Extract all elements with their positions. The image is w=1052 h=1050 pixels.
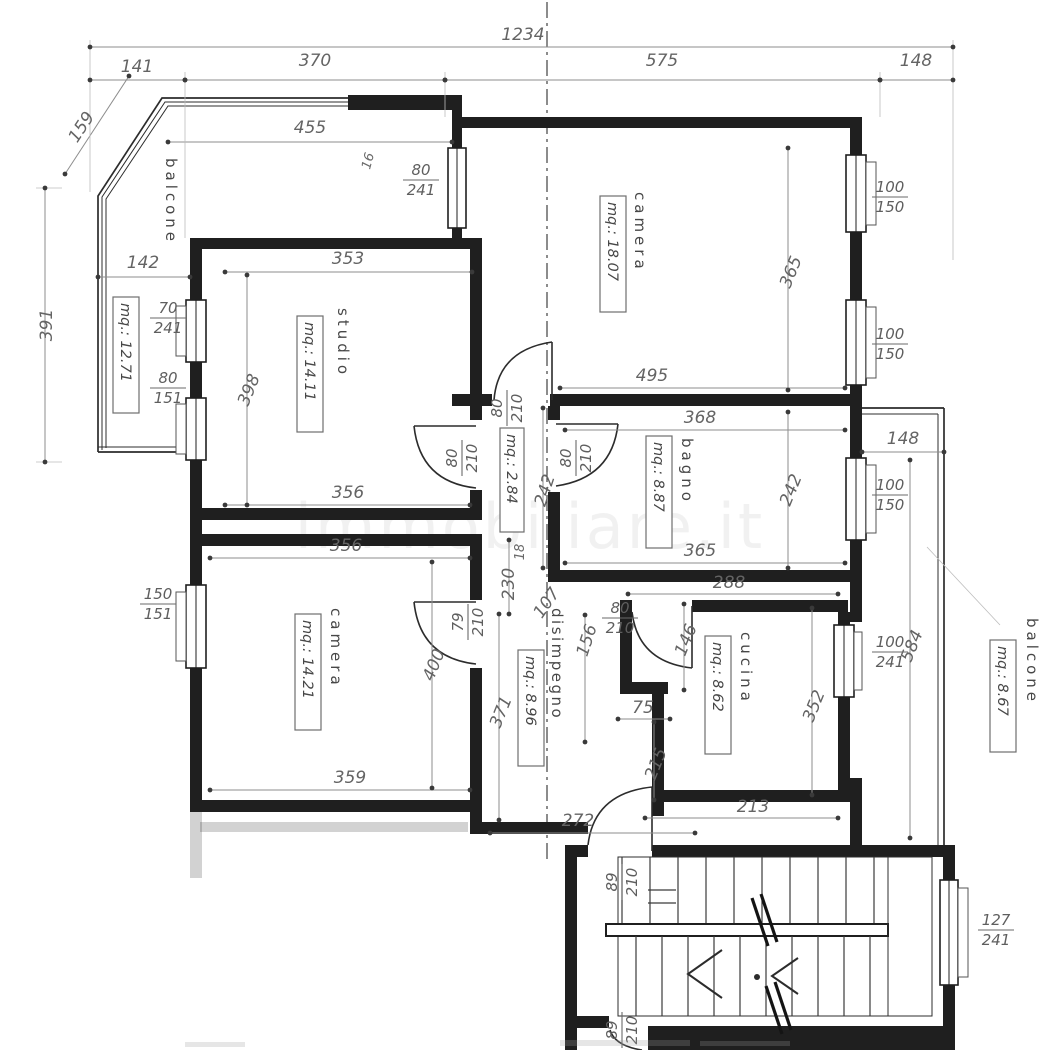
dim-tick-dot xyxy=(908,458,913,463)
room-label-cucina: cucina xyxy=(737,632,755,705)
svg-text:151: 151 xyxy=(154,389,183,407)
room-mq-disimpegno: mq.: 8.96 xyxy=(518,650,544,766)
dim-seg-575: 575 xyxy=(646,51,678,71)
room-label-studio: studio xyxy=(334,308,352,378)
dim-tick-dot xyxy=(507,612,512,617)
svg-text:mq.: 8.87: mq.: 8.87 xyxy=(650,442,666,512)
opening-label-100-241: 100241 xyxy=(872,633,908,671)
walls xyxy=(190,95,955,1050)
svg-text:89: 89 xyxy=(603,1020,621,1039)
svg-text:80: 80 xyxy=(443,448,461,467)
dim-balcony-bottom: 142 xyxy=(127,253,159,273)
room-mq-corridoio: mq.: 2.84 xyxy=(500,428,524,532)
dim-tick-dot xyxy=(652,720,657,725)
dim-tick-dot xyxy=(836,816,841,821)
room-label-balcone-right: balcone xyxy=(1023,618,1041,705)
room-mq-cucina: mq.: 8.62 xyxy=(705,636,731,754)
opening-label-80-241: 80241 xyxy=(403,161,439,199)
svg-text:210: 210 xyxy=(606,619,635,637)
dim-camera-left-top: 356 xyxy=(330,536,363,556)
svg-text:mq.: 14.11: mq.: 14.11 xyxy=(301,322,317,401)
dim-tick-dot xyxy=(563,561,568,566)
dim-tick-dot xyxy=(836,592,841,597)
dim-tick-dot xyxy=(497,612,502,617)
window-100-241-cucina xyxy=(834,625,862,697)
dim-tick-dot xyxy=(468,556,473,561)
svg-text:80: 80 xyxy=(488,398,506,417)
room-label-camera-left: camera xyxy=(327,608,345,689)
room-label-balcone-left: balcone xyxy=(162,158,180,245)
dim-tick-dot xyxy=(668,717,673,722)
dim-tick-dot xyxy=(643,816,648,821)
dim-tick-dot xyxy=(843,428,848,433)
svg-text:127: 127 xyxy=(982,911,1011,929)
svg-text:241: 241 xyxy=(876,653,905,671)
dim-cucina-top: 288 xyxy=(713,573,746,593)
window-100-150-camera-2 xyxy=(846,300,876,385)
dim-tick-dot xyxy=(96,275,101,280)
dim-studio-height: 398 xyxy=(234,371,265,409)
svg-text:210: 210 xyxy=(469,608,487,637)
window-100-150-camera-1 xyxy=(846,155,876,232)
dim-tick-dot xyxy=(183,78,188,83)
dim-tick-dot xyxy=(616,717,621,722)
svg-text:241: 241 xyxy=(407,181,436,199)
dim-tick-dot xyxy=(843,386,848,391)
dim-tick-dot xyxy=(468,503,473,508)
dim-disimpegno-bottom: 272 xyxy=(562,811,594,831)
floor-plan: immobiliare.it xyxy=(0,0,1052,1050)
dim-studio-bottom: 356 xyxy=(332,483,365,503)
dim-tick-dot xyxy=(786,146,791,151)
dim-studio-top: 353 xyxy=(332,249,364,269)
opening-label-150-151: 150151 xyxy=(140,585,176,623)
svg-text:mq.: 12.71: mq.: 12.71 xyxy=(117,303,133,382)
svg-text:80: 80 xyxy=(557,448,575,467)
dim-tick-dot xyxy=(951,45,956,50)
dim-tick-dot xyxy=(450,140,455,145)
opening-label-80-210-studio: 80210 xyxy=(443,440,481,476)
svg-text:100: 100 xyxy=(876,325,905,343)
opening-label-80-151: 80151 xyxy=(150,369,186,407)
staircase xyxy=(606,857,932,1034)
opening-label-80-210-bagno: 80210 xyxy=(557,440,595,476)
dim-tick-dot xyxy=(786,388,791,393)
window-80-241-top-left xyxy=(448,148,466,228)
dim-tick-dot xyxy=(908,836,913,841)
svg-text:mq.: 2.84: mq.: 2.84 xyxy=(503,434,519,504)
dim-tick-dot xyxy=(443,78,448,83)
opening-label-80-210-cucina: 80210 xyxy=(602,599,638,637)
dim-tick-dot xyxy=(682,602,687,607)
window-150-151-camera-left xyxy=(176,585,206,668)
dim-tick-dot xyxy=(951,78,956,83)
dim-tick-dot xyxy=(488,831,493,836)
room-mq-bagno: mq.: 8.87 xyxy=(646,436,672,548)
room-mq-camera-top: mq.: 18.07 xyxy=(600,196,626,312)
svg-text:70: 70 xyxy=(158,299,177,317)
svg-text:150: 150 xyxy=(876,198,905,216)
dim-corridoio-18: 18 xyxy=(513,544,528,561)
dim-seg-148: 148 xyxy=(900,51,933,71)
dim-cucina-146: 146 xyxy=(671,621,702,659)
dim-tick-dot xyxy=(860,450,865,455)
dim-tick-dot xyxy=(88,45,93,50)
dim-tick-dot xyxy=(188,275,193,280)
dim-tick-dot xyxy=(563,428,568,433)
door-entrance xyxy=(588,787,652,851)
svg-text:mq.: 8.62: mq.: 8.62 xyxy=(709,642,725,712)
dim-disimpegno-156: 156 xyxy=(573,622,602,659)
svg-text:mq.: 8.96: mq.: 8.96 xyxy=(522,656,538,726)
svg-text:80: 80 xyxy=(610,599,629,617)
dim-tick-dot xyxy=(497,818,502,823)
svg-text:241: 241 xyxy=(982,931,1011,949)
svg-text:100: 100 xyxy=(876,178,905,196)
dim-seg-370: 370 xyxy=(299,51,331,71)
svg-text:210: 210 xyxy=(577,444,595,473)
dim-tick-dot xyxy=(843,561,848,566)
dim-tick-dot xyxy=(541,566,546,571)
dim-tick-dot xyxy=(583,613,588,618)
svg-text:151: 151 xyxy=(144,605,173,623)
dim-camera-top-height: 365 xyxy=(776,253,807,291)
dim-tick-dot xyxy=(166,140,171,145)
window-100-150-bagno xyxy=(846,458,876,540)
dim-camera-left-height: 400 xyxy=(419,646,450,684)
room-mq-studio: mq.: 14.11 xyxy=(297,316,323,432)
room-mq-balcone-right: mq.: 8.67 xyxy=(990,640,1016,752)
opening-label-79-210: 79210 xyxy=(449,604,487,640)
svg-text:210: 210 xyxy=(623,868,641,897)
dim-tick-dot xyxy=(63,172,68,177)
svg-text:mq.: 8.67: mq.: 8.67 xyxy=(994,646,1010,716)
dim-tick-dot xyxy=(223,270,228,275)
dim-tick-dot xyxy=(470,270,475,275)
svg-text:100: 100 xyxy=(876,633,905,651)
window-80-151-studio xyxy=(176,398,206,460)
dim-tick-dot xyxy=(507,538,512,543)
opening-label-89-210-entrance: 89210 xyxy=(603,864,641,900)
dim-pier-16: 16 xyxy=(359,151,378,171)
dim-tick-dot xyxy=(652,798,657,803)
dim-tick-dot xyxy=(468,788,473,793)
svg-text:89: 89 xyxy=(603,872,621,891)
door-camera-top xyxy=(494,342,552,400)
dim-camera-left-bottom: 359 xyxy=(334,768,366,788)
dim-tick-dot xyxy=(88,78,93,83)
dim-tick-dot xyxy=(430,786,435,791)
room-label-bagno: bagno xyxy=(678,438,696,505)
dim-tick-dot xyxy=(810,793,815,798)
dim-tick-dot xyxy=(942,450,947,455)
room-label-disimpegno: disimpegno xyxy=(548,608,566,720)
svg-text:210: 210 xyxy=(463,444,481,473)
opening-label-100-150-a: 100150 xyxy=(872,178,908,216)
svg-text:210: 210 xyxy=(508,394,526,423)
dim-tick-dot xyxy=(541,406,546,411)
svg-text:100: 100 xyxy=(876,476,905,494)
svg-text:80: 80 xyxy=(158,369,177,387)
dim-camera-top-width: 495 xyxy=(636,366,668,386)
dim-balcone-right-top: 148 xyxy=(887,429,920,449)
dim-diagonal: 159 xyxy=(65,108,99,146)
svg-text:150: 150 xyxy=(876,496,905,514)
dim-total-width: 1234 xyxy=(501,25,544,45)
dim-bagno-top: 368 xyxy=(684,408,717,428)
svg-text:150: 150 xyxy=(144,585,173,603)
stair-treads-lower xyxy=(636,936,870,1016)
dim-tick-dot xyxy=(43,460,48,465)
dim-disimpegno-height: 371 xyxy=(486,693,517,731)
svg-text:mq.: 18.07: mq.: 18.07 xyxy=(604,202,620,282)
dim-tick-dot xyxy=(43,186,48,191)
room-mq-camera-left: mq.: 14.21 xyxy=(295,614,321,730)
dim-cucina-75: 75 xyxy=(632,698,654,718)
dim-cucina-bottom: 213 xyxy=(737,797,769,817)
room-label-camera-top: camera xyxy=(631,192,649,273)
dim-tick-dot xyxy=(208,556,213,561)
dim-tick-dot xyxy=(558,386,563,391)
stair-rail xyxy=(606,924,888,936)
opening-label-100-150-c: 100150 xyxy=(872,476,908,514)
dim-left-height: 391 xyxy=(37,309,57,341)
svg-text:mq.: 14.21: mq.: 14.21 xyxy=(299,620,315,699)
dim-tick-dot xyxy=(693,831,698,836)
dim-tick-dot xyxy=(626,592,631,597)
dim-tick-dot xyxy=(208,788,213,793)
dim-balcony-top: 455 xyxy=(294,118,326,138)
svg-text:241: 241 xyxy=(154,319,183,337)
dim-tick-dot xyxy=(430,560,435,565)
dim-seg-141: 141 xyxy=(121,57,153,77)
stair-break-lines xyxy=(752,894,791,1034)
dim-tick-dot xyxy=(786,566,791,571)
dim-bagno-bottom: 365 xyxy=(684,541,716,561)
window-127-241-stairs xyxy=(940,880,968,985)
dim-tick-dot xyxy=(810,606,815,611)
opening-label-70-241: 70241 xyxy=(150,299,186,337)
dim-tick-dot xyxy=(245,273,250,278)
dim-bagno-height: 242 xyxy=(776,471,807,509)
svg-text:80: 80 xyxy=(411,161,430,179)
dim-cucina-215: 215 xyxy=(641,745,672,783)
dim-cucina-height: 352 xyxy=(799,687,830,725)
dim-corridoio-230: 230 xyxy=(499,568,519,600)
svg-text:150: 150 xyxy=(876,345,905,363)
dim-tick-dot xyxy=(682,688,687,693)
dim-tick-dot xyxy=(786,410,791,415)
svg-text:79: 79 xyxy=(449,612,467,631)
dim-tick-dot xyxy=(583,740,588,745)
stair-direction-arrows xyxy=(688,950,798,998)
opening-label-100-150-b: 100150 xyxy=(872,325,908,363)
dim-tick-dot xyxy=(245,503,250,508)
dim-tick-dot xyxy=(878,78,883,83)
dim-tick-dot xyxy=(223,503,228,508)
room-mq-balcone-left: mq.: 12.71 xyxy=(113,297,139,413)
opening-label-127-241: 127241 xyxy=(978,911,1014,949)
